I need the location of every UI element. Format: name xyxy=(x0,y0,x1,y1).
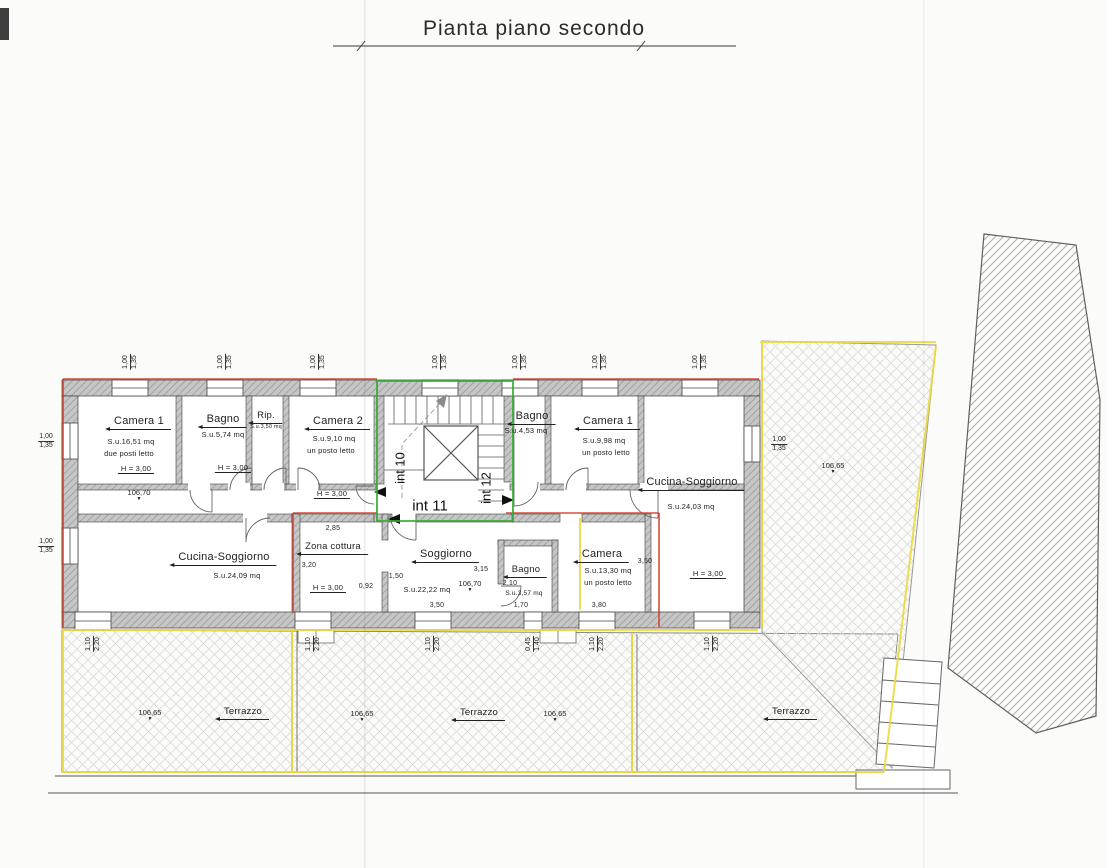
area-label: S.u.9,98 mq xyxy=(583,436,626,445)
elevator-shaft xyxy=(424,426,478,480)
title-underline xyxy=(333,41,736,51)
area-label: S.u.24,03 mq xyxy=(667,502,714,511)
room-label-camera2: Camera 2 xyxy=(306,415,370,430)
neighbor-building xyxy=(948,234,1100,733)
area-label: S.u.3,57 mq xyxy=(505,589,542,598)
room-label-bagno-ne: Bagno xyxy=(509,410,556,425)
room-label-zona-cottura: Zona cottura xyxy=(298,540,368,555)
dim-camera-s-width: 3,80 xyxy=(592,601,606,610)
area-label: S.u.5,74 mq xyxy=(202,430,245,439)
beds-label: un posto letto xyxy=(307,446,355,455)
dim-window-top: 1,001,35 xyxy=(512,354,528,370)
ground-lines xyxy=(48,776,958,793)
area-label: S.u.22,22 mq xyxy=(403,585,450,594)
area-label: S.u.9,10 mq xyxy=(313,434,356,443)
plan-drawing xyxy=(0,0,1107,868)
dim-passage-a: 0,92 xyxy=(359,582,373,591)
room-label-camera-s: Camera xyxy=(575,548,629,563)
dim-bagno-s-depth: 1,70 xyxy=(514,601,528,610)
dim-window-top: 1,001,35 xyxy=(310,354,326,370)
height-label: H = 3,00 xyxy=(310,583,346,593)
elevation-marker: 106,65▼ xyxy=(822,462,845,475)
terrace-label: Terrazzo xyxy=(765,705,817,720)
height-label: H = 3,00 xyxy=(118,464,154,474)
dim-window-bottom: 1,102,20 xyxy=(589,636,605,652)
terrace-label: Terrazzo xyxy=(453,706,505,721)
elevation-marker: 106,65▼ xyxy=(351,710,374,723)
elevation-marker: 106,65▼ xyxy=(139,709,162,722)
dim-window-bottom: 1,102,20 xyxy=(425,636,441,652)
dim-window-top: 1,001,35 xyxy=(217,354,233,370)
dim-zona-depth: 3,20 xyxy=(302,561,316,570)
room-label-camera1-nw: Camera 1 xyxy=(107,415,171,430)
beds-label: un posto letto xyxy=(584,578,632,587)
room-label-camera1-ne: Camera 1 xyxy=(576,415,640,430)
elevation-marker: 106,70▼ xyxy=(128,489,151,502)
dim-window-bottom: 1,102,20 xyxy=(704,636,720,652)
dim-window-bottom: 1,102,20 xyxy=(85,636,101,652)
dim-window-top: 1,001,35 xyxy=(432,354,448,370)
dim-window-top: 1,001,35 xyxy=(692,354,708,370)
plan-title: Pianta piano secondo xyxy=(423,17,645,41)
dim-bagno-s-width: 2,10 xyxy=(503,579,517,588)
room-label-bagno-nw: Bagno xyxy=(200,413,247,428)
elevation-marker: 106,70▼ xyxy=(459,580,482,593)
unit-label-int11: int 11 xyxy=(412,498,448,515)
dim-soggiorno-width: 3,50 xyxy=(430,601,444,610)
elevation-marker: 106,65▼ xyxy=(544,710,567,723)
area-label: S.u.3,50 mq xyxy=(250,423,282,432)
room-label-cucina-e: Cucina-Soggiorno xyxy=(639,476,744,491)
dim-window-right: 1,001,35 xyxy=(771,436,787,452)
room-label-rip: Rip. xyxy=(250,409,282,424)
dim-window-left: 1,001,35 xyxy=(38,538,54,554)
beds-label: un posto letto xyxy=(582,448,630,457)
terrace-label: Terrazzo xyxy=(217,705,269,720)
dim-window-small: 0,451,40 xyxy=(525,636,541,652)
floor-plan-canvas: Pianta piano secondo Camera 1 S.u.16,51 … xyxy=(0,0,1107,868)
terrace-bottom xyxy=(62,630,898,772)
area-label: S.u.16,51 mq xyxy=(107,437,154,446)
area-label: S.u.4,53 mq xyxy=(505,426,548,435)
height-label: H = 3,00 xyxy=(690,569,726,579)
area-label: S.u.24,09 mq xyxy=(213,571,260,580)
dim-window-top: 1,001,35 xyxy=(592,354,608,370)
dim-window-top: 1,001,35 xyxy=(122,354,138,370)
unit-label-int12: int 12 xyxy=(479,472,494,504)
room-label-bagno-s: Bagno xyxy=(505,563,547,578)
unit-label-int10: int 10 xyxy=(393,452,408,484)
dim-window-left: 1,001,35 xyxy=(38,433,54,449)
dim-window-bottom: 1,102,20 xyxy=(305,636,321,652)
height-label: H = 3,00 xyxy=(215,463,251,473)
dim-zona-width: 2,85 xyxy=(326,524,340,533)
room-label-soggiorno: Soggiorno xyxy=(413,548,479,563)
dim-soggiorno-depth: 3,15 xyxy=(474,565,488,574)
beds-label: due posti letto xyxy=(104,449,154,458)
dim-camera-s-depth: 3,50 xyxy=(638,557,652,566)
height-label: H = 3,00 xyxy=(314,489,350,499)
room-label-cucina-sw: Cucina-Soggiorno xyxy=(171,551,276,566)
dim-passage-b: 1,50 xyxy=(389,572,403,581)
area-label: S.u.13,30 mq xyxy=(584,566,631,575)
